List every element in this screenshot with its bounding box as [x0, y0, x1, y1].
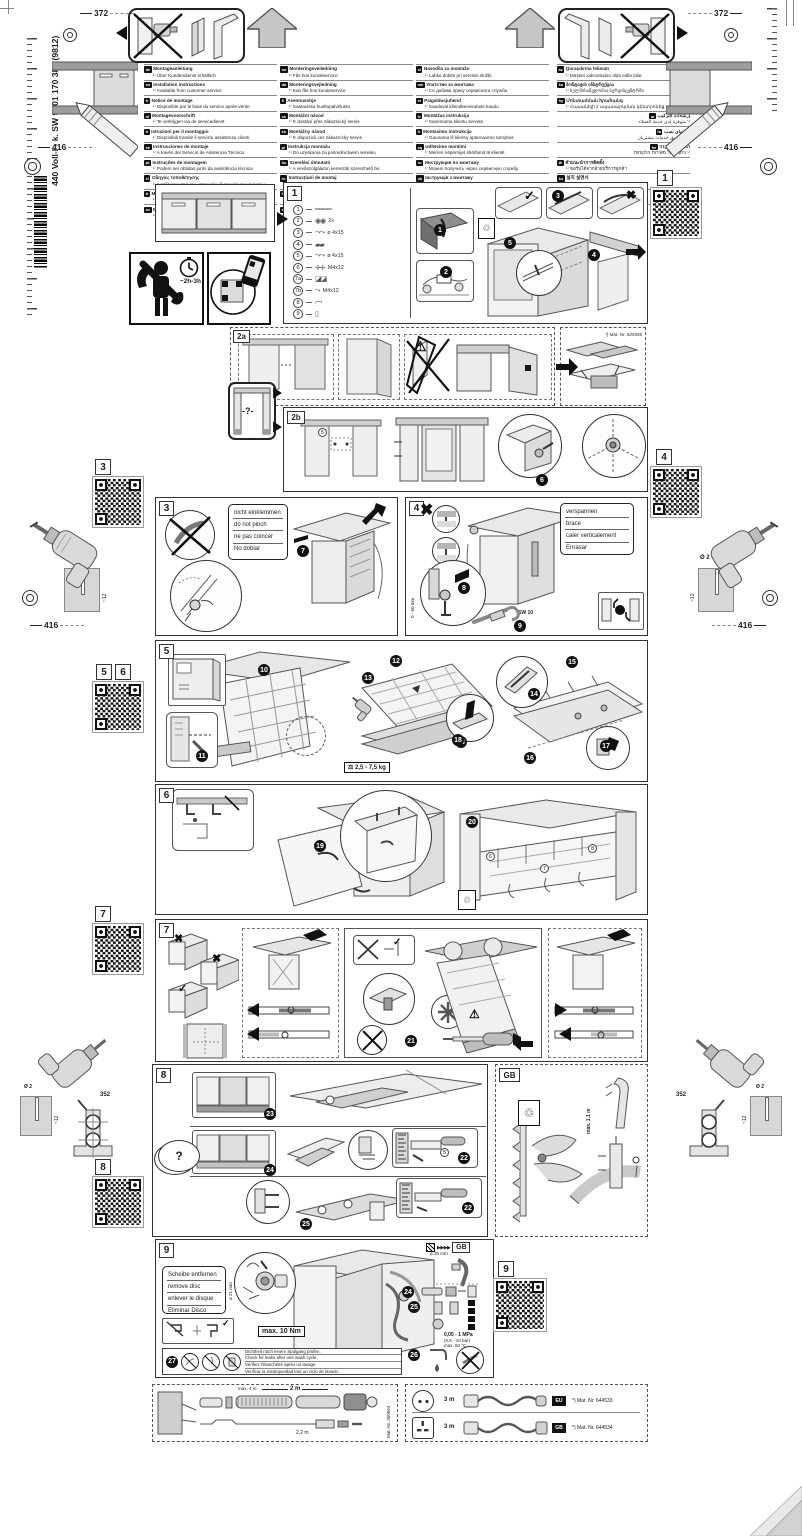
qr-code-7	[93, 924, 143, 974]
pressure-spec: 0,05 - 1 MPa (0,5 - 10 bar) max. 60 °C	[444, 1332, 494, 1348]
part-spec: ø 4x15	[327, 230, 343, 236]
note-line-es: Enrasar	[565, 543, 629, 554]
unknown-pointer-top-icon	[273, 387, 282, 398]
no-kink-crossed-circle	[165, 510, 215, 560]
magnifier-bottom-clip	[246, 1180, 290, 1224]
note-line-fr: enlever le disque	[167, 1293, 221, 1305]
language-entry: etPaigaldusjuhend¹⁾ Saadaval klienditeen…	[416, 95, 549, 111]
leak-line-es: Verificar la estanqueidad tras un ciclo …	[245, 1369, 401, 1375]
part-ref-7: 7	[540, 864, 549, 873]
row-separator-1	[190, 1126, 486, 1127]
note-line-es: No doblar	[233, 544, 283, 555]
note-line-de: nicht einklemmen	[233, 507, 283, 519]
no-gap-cross-icon: ✖	[420, 500, 433, 520]
step-dot-16: 16	[524, 752, 536, 764]
pointer-after-preview-icon	[277, 212, 288, 226]
language-entry: sqUdhëzime montimi¹⁾ Merren nëpërmjet sh…	[416, 142, 549, 158]
language-entry: enInstallation instructions¹⁾ Available …	[144, 80, 277, 96]
time-estimate-label: ~2h-3h	[180, 278, 201, 285]
dim-416-drill-left: 416	[30, 620, 102, 630]
crop-mark-tr	[786, 0, 787, 26]
gap-detail-circle-top	[432, 505, 460, 533]
part-ref-circle: 1	[293, 205, 303, 215]
plinth-rail-2	[286, 1130, 346, 1174]
manual-page: 440 Voll-I - k. SW 9001 170 388 (9812) 3…	[0, 0, 802, 1536]
magnifier-clip	[348, 1130, 388, 1170]
language-entry: lvMontāžas instrukcija¹⁾ Saņemama klient…	[416, 111, 549, 127]
to-template-arrow-icon	[556, 358, 578, 376]
drill-right-illustration	[692, 520, 792, 610]
magnifier-14	[496, 656, 548, 708]
verdict-ok-panel	[495, 187, 542, 219]
part-ref-circle: 5	[293, 251, 303, 261]
hose-dim-2m: 2 m	[262, 1386, 358, 1392]
part-ref-circle: 9	[293, 309, 303, 319]
magnifier-screw-right	[582, 414, 646, 478]
variant-cross-2: ✖	[212, 952, 221, 965]
fast-forward-icon: ▶▶▶▶	[437, 1245, 450, 1251]
max-torque-label: max. 10 Nm	[258, 1326, 305, 1337]
plinth-rail-1	[286, 1068, 486, 1124]
front-template-box	[168, 654, 226, 706]
part-glyph-icon: ⌐¬	[315, 299, 321, 306]
halfway-inserted-illustration	[392, 412, 492, 490]
parts-list-row: 3 ⤳⤳ ø 4x15	[293, 227, 407, 239]
parts-list-row: 9 ▯	[293, 308, 407, 320]
magnifier-screw-left	[498, 414, 562, 478]
step-dot-14: 14	[528, 688, 540, 700]
remove-disc-note: Scheibe entfernen remove disc enlever le…	[162, 1266, 226, 1314]
unknown-niche-box: -?-	[228, 382, 276, 440]
verdict-bad-panel	[597, 187, 644, 219]
section5-label: 5	[159, 644, 174, 659]
language-entry: ruИнструкция по монтажу¹⁾ Можно получить…	[416, 157, 549, 173]
step-dot-s9-25: 25	[408, 1301, 420, 1313]
language-entry: csMontážní návod¹⁾ K dostání přes zákazn…	[280, 111, 413, 127]
warning-triangle-icon: ⚠	[414, 338, 427, 355]
cord-row-separator	[412, 1412, 640, 1413]
language-entry: nlMontagevoorschrift¹⁾ Te verkrijgen via…	[144, 111, 277, 127]
hose-icon	[426, 1243, 435, 1252]
gb-mat-number: *) Mat. Nr. 644534	[572, 1425, 613, 1431]
gauge-ref-circle: 5	[440, 1148, 449, 1157]
language-entry: deMontageanleitung¹⁾ Über Kundendienst e…	[144, 64, 277, 80]
hook-profile-inset	[172, 789, 254, 851]
parts-list-row: 1 ════	[293, 204, 407, 216]
installation-time-box: ~2h-3h	[129, 252, 204, 325]
register-circle-tl	[63, 28, 77, 42]
mini-drill-icon	[344, 694, 378, 728]
pointer-left-icon	[116, 26, 127, 40]
leak-icon-3	[223, 1353, 241, 1371]
check-icon: ✓	[524, 188, 535, 204]
mark-line-inset	[166, 712, 218, 768]
rail-option-right-panel	[548, 928, 642, 1058]
parts-list-row: 4 ▰▰	[293, 239, 407, 251]
note-line-fr: caler verticalement	[565, 530, 629, 542]
gb-cord-length: 3 m	[444, 1424, 454, 1430]
step-dot-23: 23	[264, 1108, 276, 1120]
eu-socket-icon	[412, 1390, 434, 1412]
step-dot-12: 12	[390, 655, 402, 667]
magnifier-hinge-detail	[170, 560, 242, 632]
section1-divider	[410, 188, 411, 318]
step-dot-24: 24	[264, 1164, 276, 1176]
clock-icon	[178, 256, 200, 278]
crop-mark-tl	[8, 0, 9, 14]
open-base-illustration	[450, 792, 642, 908]
step-dot-27: 27	[166, 1356, 178, 1368]
gb-inline-label: GB	[452, 1242, 470, 1253]
insert-arrow-icon	[626, 244, 646, 260]
part-glyph-icon: ⤳⤳	[315, 229, 324, 237]
language-entry: huSzerelési útmutató¹⁾ A vevőszolgálaton…	[280, 157, 413, 173]
no-drill-illustration-mirrored	[560, 10, 673, 61]
drill-left-illustration	[16, 520, 116, 610]
right-ruler	[766, 8, 777, 116]
tap-diameter-label: ø 21 mm	[228, 1270, 233, 1300]
magnifier-tap-detail	[234, 1252, 296, 1314]
row-separator-2	[190, 1176, 486, 1177]
do-not-pinch-note: nicht einklemmen do not pinch ne pas coi…	[228, 504, 288, 560]
section3-label: 3	[159, 501, 174, 516]
question-bubble: ?	[158, 1140, 200, 1172]
parts-list-row: 7a ◪◪	[293, 274, 407, 286]
step-dot-13: 13	[362, 672, 374, 684]
hose-extension-illustration	[156, 1390, 382, 1438]
qr4-label: 4	[656, 449, 672, 465]
note-line-en: remove disc	[167, 1281, 221, 1293]
step-dot-4: 4	[588, 249, 600, 261]
dishwasher-iso-illustration	[478, 222, 646, 322]
language-entry: ptInstruções de montagem¹⁾ Podem ser obt…	[144, 157, 277, 173]
dispose-icon: ♲	[458, 890, 476, 910]
step-dot-9: 9	[514, 620, 526, 632]
gb-dispose-icon: ♲	[518, 1100, 540, 1126]
gb-socket-icon	[412, 1417, 434, 1439]
leak-icon-2	[202, 1353, 220, 1371]
part-glyph-icon: ▰▰	[315, 241, 324, 249]
language-entry: frNotice de montage¹⁾ Disponible par le …	[144, 95, 277, 111]
step-dot-7: 7	[297, 545, 309, 557]
part-ref-8: 8	[588, 844, 597, 853]
dashed-magnifier-5	[286, 716, 326, 756]
door-weight-badge: ⚖ 2,5 - 7,5 kg	[344, 762, 390, 773]
crop-mark-tr2	[793, 0, 794, 26]
part-glyph-icon: ⤳	[315, 287, 320, 295]
door-weight-pictogram-box	[598, 592, 644, 630]
push-arrow-icon	[513, 1037, 533, 1051]
eu-cord-illustration	[462, 1390, 548, 1412]
section2b-label: 2b	[287, 411, 305, 424]
step-dot-6: 6	[536, 474, 548, 486]
faucet-drop-icon	[424, 1346, 450, 1374]
foot-range-dim: 0 - 60 mm	[410, 570, 415, 618]
cabinet-variants-illustration	[163, 928, 239, 1060]
part-glyph-icon: ════	[315, 206, 331, 213]
part-ref-5: 5	[318, 428, 327, 437]
parts-list-row: 8 ⌐¬	[293, 297, 407, 309]
part-ref-circle: 8	[293, 298, 303, 308]
magnifier-strip-detail	[516, 250, 562, 296]
gap-check-inset	[353, 935, 415, 965]
magnifier-screw-joint	[363, 973, 415, 1025]
leak-line-en: Check for leaks after one wash cycle.	[245, 1355, 401, 1362]
qr-code-9	[494, 1279, 546, 1331]
unknown-pointer-bottom-icon	[273, 421, 282, 432]
language-entry: noMonteringsveiledning¹⁾ Fås hos kundese…	[280, 64, 413, 80]
part-ref-circle: 4	[293, 240, 303, 250]
unknown-dimension-label: -?-	[242, 406, 254, 416]
section9-label: 9	[159, 1243, 174, 1258]
pedestal-drill-left	[16, 1038, 126, 1168]
step-dot-21: 21	[405, 1035, 417, 1047]
dim-372-right: 372	[688, 8, 760, 18]
register-circle-right2	[760, 158, 777, 175]
part-glyph-icon: ◉◉	[315, 217, 325, 225]
variant-check: ✓	[178, 982, 187, 995]
niche-marks-illustration	[295, 416, 387, 486]
no-drill-panel-box-right	[558, 8, 675, 63]
parts-list: 1 ════ 2 ◉◉ 2x 3 ⤳⤳ ø 4x15 4 ▰▰ 5 ⤳⤳ ø 4…	[293, 204, 407, 322]
note-line-de: Scheibe entfernen	[167, 1269, 221, 1281]
note-line-en: brace	[565, 518, 629, 530]
screwdriver-illustration	[437, 1027, 521, 1055]
step-dot-s9-26: 26	[408, 1349, 420, 1361]
gb-fast-row: ▶▶▶▶ GB	[426, 1242, 470, 1253]
leak-icon-1	[181, 1353, 199, 1371]
language-entry: skMontážny návod¹⁾ K dispozícii cez záka…	[280, 126, 413, 142]
qr3-label: 3	[95, 459, 111, 475]
seal-check-icon: ✓	[222, 1318, 230, 1329]
language-entry: fiAsennusohje¹⁾ Saatavissa huoltopalvelu…	[280, 95, 413, 111]
step-dot-s9-24: 24	[402, 1286, 414, 1298]
step-dot-22b: 22	[462, 1202, 474, 1214]
tall-cabinet-panel	[338, 334, 400, 400]
part-glyph-icon: ⤳⤳	[315, 252, 324, 260]
gb-badge: GB	[552, 1423, 566, 1433]
dim-416-right: 416	[698, 142, 768, 152]
big-arrow-up-right-icon	[505, 8, 555, 48]
step-dot-11: 11	[196, 750, 208, 762]
connector-parts-column	[428, 1298, 486, 1332]
qr9-label: 9	[498, 1261, 514, 1277]
note-line-en: do not pinch	[233, 519, 283, 531]
part-glyph-icon: ◪◪	[315, 275, 326, 283]
part-ref-circle: 3	[293, 228, 303, 238]
eu-mat-number: *) Mat. Nr. 644533	[572, 1398, 613, 1404]
qr8-label: 8	[95, 1159, 111, 1175]
up-right-arrow-icon	[362, 503, 386, 525]
qr7-label: 7	[95, 906, 111, 922]
step-dot-1: 1	[434, 224, 446, 236]
cross-icon: ✖	[626, 188, 636, 202]
note-line-de: verspannen	[565, 506, 629, 518]
no-screw-circle	[357, 1025, 387, 1055]
leak-line-fr: Vérifiez l'étanchéité après un lavage.	[245, 1362, 401, 1369]
parts-list-row: 7b ⤳ M4x12	[293, 285, 407, 297]
dim-416-drill-right: 416	[712, 620, 784, 630]
parts-list-row: 5 ⤳⤳ ø 4x15	[293, 250, 407, 262]
section6-label: 6	[159, 788, 174, 803]
step-dot-20: 20	[466, 816, 478, 828]
section7-label: 7	[159, 923, 174, 938]
part-spec: M4x12	[323, 288, 339, 294]
part-ref-circle: 7a	[293, 274, 303, 284]
leak-check-box: 27 Dichtheit nach einem Spülgang prüfen.…	[162, 1348, 402, 1375]
step-dot-5: 5	[504, 237, 516, 249]
qr-code-4	[651, 467, 701, 517]
hook-part-illustration	[598, 1074, 640, 1134]
page-corner-fold	[750, 1486, 802, 1536]
kitchen-preview-box	[155, 184, 275, 242]
big-arrow-up-left-icon	[247, 8, 297, 48]
step-dot-25: 25	[300, 1218, 312, 1230]
qr-code-3	[93, 477, 143, 527]
part-spec: M4x12	[328, 265, 344, 271]
recycle-bin-icon: ♲	[478, 218, 495, 239]
step-dot-8: 8	[458, 582, 470, 594]
step-dot-3: 3	[552, 190, 564, 202]
crop-mark-tl2	[0, 8, 14, 9]
qr1-label: 1	[657, 170, 673, 186]
qr-code-8	[93, 1177, 143, 1227]
qr5-label: 5	[96, 664, 112, 680]
pressure-line-3: max. 60 °C	[444, 1343, 494, 1348]
language-entry: mkУпатство за монтажа¹⁾ Се добива преку …	[416, 80, 549, 96]
brace-note: verspannen brace caler verticalement Enr…	[560, 503, 634, 555]
qr-code-5-6	[93, 682, 143, 732]
pedestal-drill-right	[676, 1038, 786, 1168]
note-line-fr: ne pas coincer	[233, 531, 283, 543]
qr6-label: 6	[115, 664, 131, 680]
part-ref-circle: 2	[293, 216, 303, 226]
register-circle-tr	[724, 28, 738, 42]
leak-line-de: Dichtheit nach einem Spülgang prüfen.	[245, 1349, 401, 1356]
no-tool-circle	[456, 1346, 484, 1374]
part-ref-6: 6	[486, 852, 495, 861]
variant-cross-1: ✖	[174, 932, 183, 945]
register-circle-left2	[24, 158, 41, 175]
step-dot-17: 17	[600, 740, 612, 752]
language-entry: itIstruzioni per il montaggio¹⁾ Disponib…	[144, 126, 277, 142]
dim-372-left: 372	[80, 8, 152, 18]
step-dot-18: 18	[452, 734, 464, 746]
part-glyph-icon: ✛✛	[315, 264, 325, 272]
qr-code-1	[651, 188, 701, 238]
rail-option-left-panel	[242, 928, 339, 1058]
warning-icon: ⚠	[469, 1007, 480, 1021]
template-mat-number: *) Mat.-Nr. 625456	[605, 332, 642, 337]
part-ref-circle: 6	[293, 263, 303, 273]
barcode	[34, 176, 47, 268]
part-spec: ø 4x15	[327, 253, 343, 259]
rail-center-panel: ✓ ⚠ 21	[344, 928, 542, 1058]
magnifier-door-hook	[340, 790, 432, 882]
language-entry: daMonteringsvejledning¹⁾ Kan fås hos kun…	[280, 80, 413, 96]
drain-fitting-row	[418, 1284, 490, 1298]
gb-cord-illustration	[462, 1417, 548, 1439]
parts-list-row: 6 ✛✛ M4x12	[293, 262, 407, 274]
gb-hose-height-dim: max. 1,1 m	[586, 1082, 592, 1134]
note-line-es: Eliminar Disco	[167, 1306, 221, 1317]
step-dot-15: 15	[566, 656, 578, 668]
section8-label: 8	[156, 1068, 171, 1083]
language-entry: slNavodila za montažo¹⁾ Lahko dobite pri…	[416, 64, 549, 80]
phone-qr-icon	[209, 254, 267, 321]
hose-mat-number: Mat.-Nr. 350564	[386, 1390, 391, 1438]
parts-list-row: 2 ◉◉ 2x	[293, 216, 407, 228]
section1-label: 1	[287, 186, 302, 201]
curved-hose-illustration	[570, 1136, 646, 1228]
scan-phone-box	[207, 252, 271, 325]
step-dot-19: 19	[314, 840, 326, 852]
section2a-label: 2a	[233, 330, 250, 343]
magnifier-foot-detail	[420, 560, 486, 626]
language-entry: ltMontavimo instrukcija¹⁾ Gaunama iš kli…	[416, 126, 549, 142]
inset-check-icon: ✓	[393, 937, 401, 948]
eu-badge: EU	[552, 1396, 566, 1406]
kitchen-front-illustration	[156, 185, 272, 239]
step-dot-10: 10	[258, 664, 270, 676]
pointer-right-icon	[677, 26, 688, 40]
language-entry: esInstrucciones de montaje¹⁾ A través de…	[144, 142, 277, 158]
part-spec: 2x	[328, 218, 334, 224]
language-entry: plInstrukcja montażu¹⁾ Do uzyskania za p…	[280, 142, 413, 158]
gb-section-label: GB	[499, 1068, 520, 1082]
step-dot-22a: 22	[458, 1152, 470, 1164]
part-glyph-icon: ▯	[315, 310, 318, 318]
part-ref-circle: 7b	[293, 286, 303, 296]
eu-cord-length: 3 m	[444, 1397, 454, 1403]
step-dot-2: 2	[440, 266, 452, 278]
dim-416-left: 416	[38, 142, 108, 152]
